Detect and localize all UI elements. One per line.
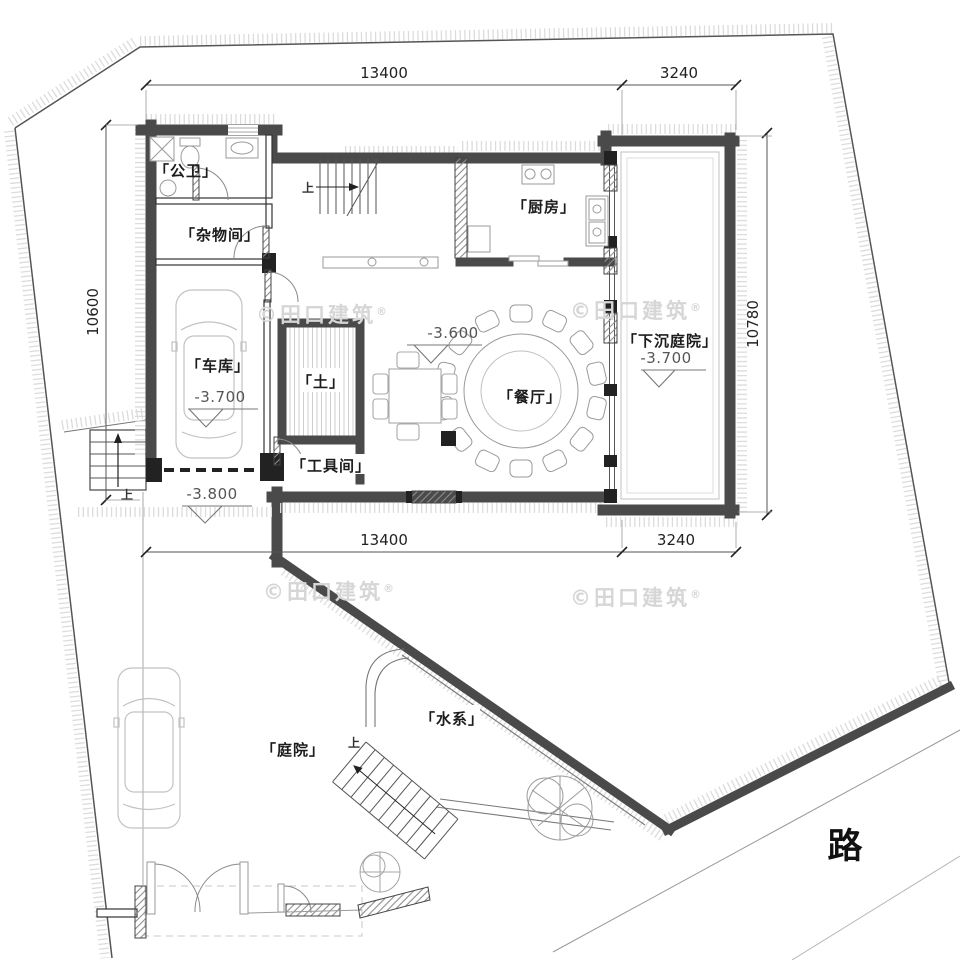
room-label-dining: 「餐厅」	[498, 388, 562, 406]
up-label-stairs: 上	[302, 180, 314, 195]
dim-bottom-main: 13400	[360, 531, 408, 549]
dim-left: 10600	[84, 288, 102, 336]
interior-stairs: 上	[302, 159, 378, 216]
elevation-sunken-courtyard-value: -3.700	[640, 349, 691, 367]
dim-right: 10780	[744, 300, 762, 348]
elevation-driveway: -3.800	[182, 485, 252, 523]
road-edge	[553, 730, 960, 960]
water-feature	[366, 649, 645, 830]
room-label-kitchen: 「厨房」	[512, 198, 576, 216]
garden-stairs: 上	[333, 735, 458, 859]
floor-plan-page: 路 上	[0, 0, 960, 960]
watermark: ©田口建筑®	[263, 580, 397, 604]
elevation-garage-value: -3.700	[194, 388, 245, 406]
room-label-storage: 「杂物间」	[180, 226, 260, 244]
elevation-garage: -3.700	[188, 388, 258, 427]
kitchen-partition-wall	[455, 158, 467, 258]
column	[441, 431, 456, 446]
floor-plan-canvas: 路 上	[0, 0, 960, 960]
tree-small	[360, 852, 400, 892]
dim-top-main: 13400	[360, 64, 408, 82]
dim-bottom-secondary: 3240	[657, 531, 695, 549]
sideboard	[323, 257, 438, 268]
watermark: ©田口建筑®	[570, 299, 704, 323]
dim-top-secondary: 3240	[660, 64, 698, 82]
elevation-driveway-value: -3.800	[186, 485, 237, 503]
road-label: 路	[827, 827, 864, 867]
room-label-water-feature: 「水系」	[420, 710, 484, 728]
room-label-sunken-courtyard: 「下沉庭院」	[622, 332, 718, 350]
tree-large	[527, 776, 593, 840]
room-label-public-wc: 「公卫」	[154, 162, 218, 180]
room-label-tool-room: 「工具间」	[291, 457, 371, 475]
courtyard-car	[114, 668, 184, 828]
watermark: ©田口建筑®	[570, 586, 704, 610]
up-label-garden: 上	[348, 735, 360, 750]
elevation-sunken-courtyard: -3.700	[640, 349, 706, 387]
room-label-courtyard: 「庭院」	[261, 741, 325, 759]
watermark: ©田口建筑®	[256, 303, 390, 327]
sunken-courtyard-paving	[621, 152, 719, 499]
elevation-dining-value: -3.600	[427, 324, 478, 342]
room-label-garage: 「车库」	[186, 357, 250, 375]
room-label-soil: 「土」	[297, 373, 345, 391]
